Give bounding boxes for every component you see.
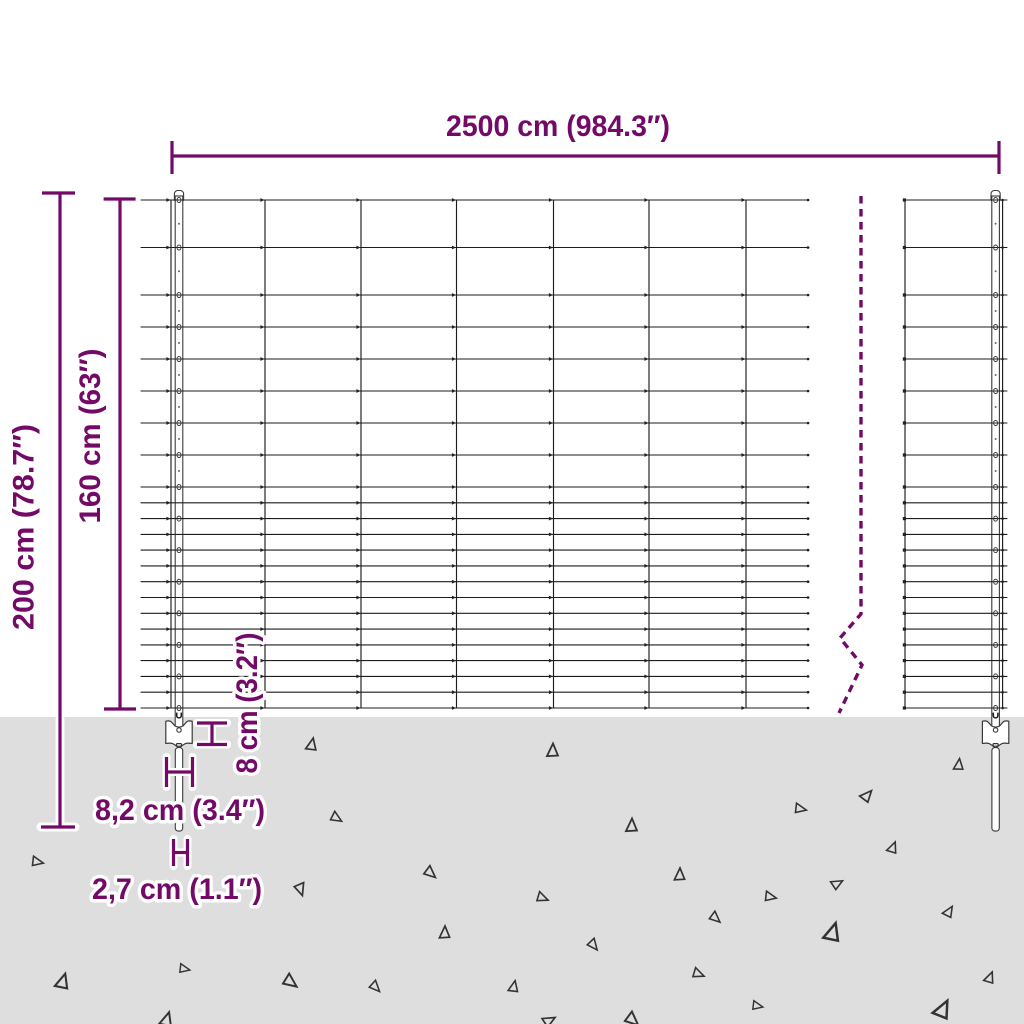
svg-text:160 cm (63″): 160 cm (63″) bbox=[74, 349, 107, 524]
svg-text:8,2 cm (3.4″): 8,2 cm (3.4″) bbox=[95, 794, 265, 827]
svg-text:2500 cm (984.3″): 2500 cm (984.3″) bbox=[446, 110, 670, 143]
svg-text:200 cm (78.7″): 200 cm (78.7″) bbox=[8, 424, 41, 630]
svg-text:8 cm (3.2″): 8 cm (3.2″) bbox=[231, 633, 264, 774]
svg-text:2,7 cm (1.1″): 2,7 cm (1.1″) bbox=[92, 873, 262, 906]
